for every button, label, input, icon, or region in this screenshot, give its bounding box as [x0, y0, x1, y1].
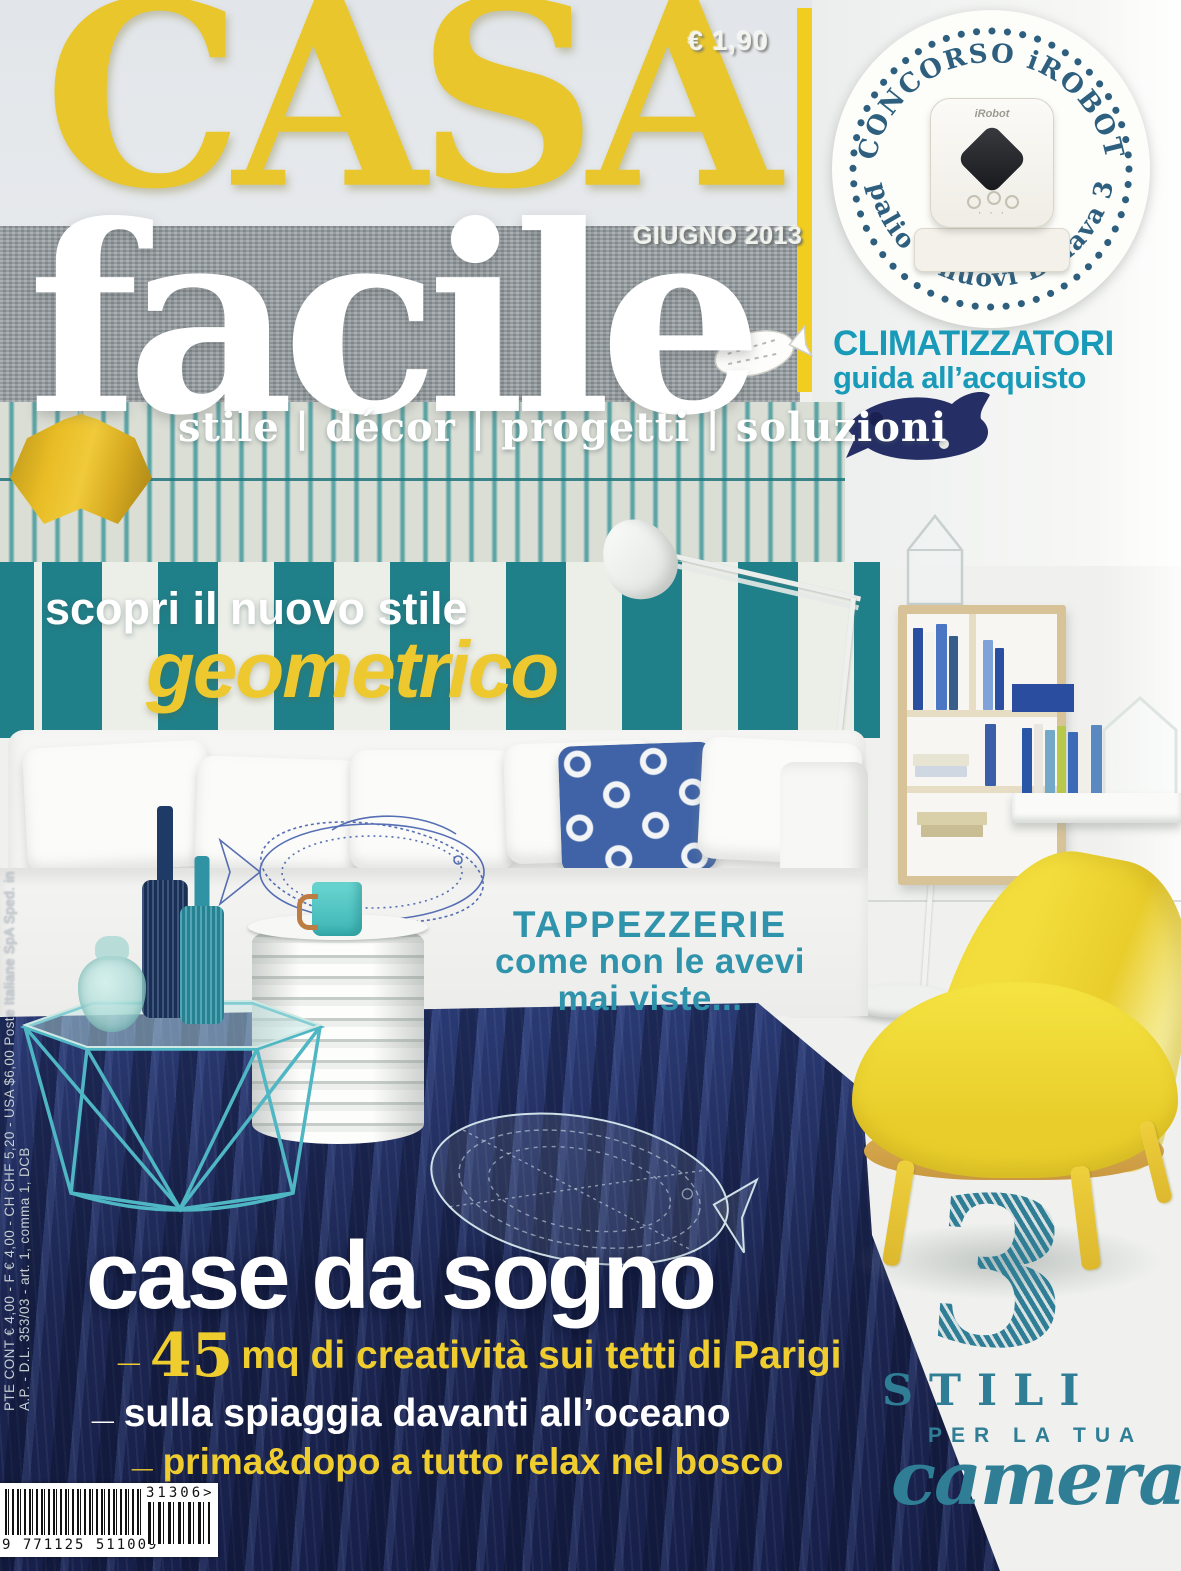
bullet-dash: _: [132, 1435, 153, 1472]
robot-screen: [957, 124, 1028, 195]
spine-publication-info: PTE CONT € 4,00 - F € 4,00 - CH CHF 5,20…: [2, 845, 32, 1411]
irobot-brand-label: iRobot: [931, 108, 1053, 120]
tappezzerie-block: TAPPEZZERIE come non le avevi mai viste.…: [468, 906, 832, 1017]
book-spine: [983, 640, 993, 710]
barcode-bars: [5, 1489, 143, 1535]
case-bullet-list: _45mq di creatività sui tetti di Parigi …: [92, 1326, 842, 1480]
blue-panel: [1012, 684, 1074, 712]
camera-number: 3: [921, 1167, 1078, 1381]
book-spine: [1022, 728, 1032, 794]
wire-coffee-table: [15, 995, 335, 1225]
case-da-sogno-title: case da sogno: [86, 1228, 714, 1324]
stacked-book: [913, 754, 969, 766]
robot-button: [987, 191, 1001, 205]
tappezzerie-line3: mai viste...: [468, 981, 832, 1017]
camera-stili: STILI: [882, 1366, 1096, 1416]
bullet-parigi: _45mq di creatività sui tetti di Parigi: [118, 1326, 842, 1386]
issue-date: GIUGNO 2013: [633, 222, 802, 251]
barcode: 9 771125 511009 31306>: [0, 1483, 218, 1557]
bullet-text: sulla spiaggia davanti all’oceano: [124, 1392, 731, 1435]
barcode-addon-bars: [148, 1502, 210, 1544]
book-spine: [1068, 732, 1078, 794]
robot-charging-tray: [914, 228, 1070, 272]
book-spine: [925, 632, 934, 710]
book-spine: [1045, 730, 1055, 794]
tappezzerie-line1: TAPPEZZERIE: [468, 906, 832, 944]
camera-title: camera: [891, 1436, 1181, 1522]
irobot-braava-product: iRobot · · ·: [930, 98, 1054, 228]
book-spine: [1034, 724, 1043, 794]
stacked-book: [915, 766, 967, 777]
barcode-addon: 31306>: [146, 1485, 215, 1501]
climatizzatori-subheadline: guida all’acquisto: [833, 360, 1086, 396]
bullet-dash: _: [118, 1328, 140, 1367]
climatizzatori-headline: CLIMATIZZATORI: [833, 324, 1114, 364]
teal-textured-bottle: [180, 856, 224, 1024]
wall-shelf-board: [1012, 793, 1181, 823]
geometrico-title: geometrico: [146, 624, 557, 716]
book-spine: [913, 628, 923, 710]
stacked-book: [921, 825, 983, 837]
bullet-text: mq di creatività sui tetti di Parigi: [241, 1334, 841, 1377]
shelf-divider: [969, 614, 976, 710]
robot-dots: · · ·: [978, 205, 1007, 219]
bullet-text: prima&dopo a tutto relax nel bosco: [163, 1441, 784, 1482]
bullet-bosco: _prima&dopo a tutto relax nel bosco: [132, 1443, 842, 1480]
glass-house-lantern: [1098, 690, 1181, 802]
house-terrarium: [903, 510, 967, 608]
patterned-pillow: [558, 741, 717, 874]
tagline: stile | décor | progetti | soluzioni: [178, 404, 947, 451]
bullet-dash: _: [92, 1386, 114, 1425]
book-spine: [985, 724, 996, 786]
cover-price: € 1,90: [688, 26, 769, 57]
magazine-cover: CONCORSO iROBOT in palio 5 nuovi Braava …: [0, 0, 1181, 1571]
book-spine: [936, 624, 947, 710]
book-spine: [1057, 726, 1066, 794]
barcode-digits: 9 771125 511009: [2, 1537, 158, 1553]
bullet-oceano: _sulla spiaggia davanti all’oceano: [92, 1394, 842, 1433]
bullet-number: 45: [150, 1321, 234, 1391]
book-spine: [1080, 728, 1089, 794]
turquoise-mug: [312, 882, 362, 936]
book-spine: [995, 648, 1004, 710]
tappezzerie-line2: come non le avevi: [468, 944, 832, 980]
stacked-book: [917, 812, 987, 825]
robot-button: [1005, 195, 1019, 209]
book-spine: [949, 636, 958, 710]
